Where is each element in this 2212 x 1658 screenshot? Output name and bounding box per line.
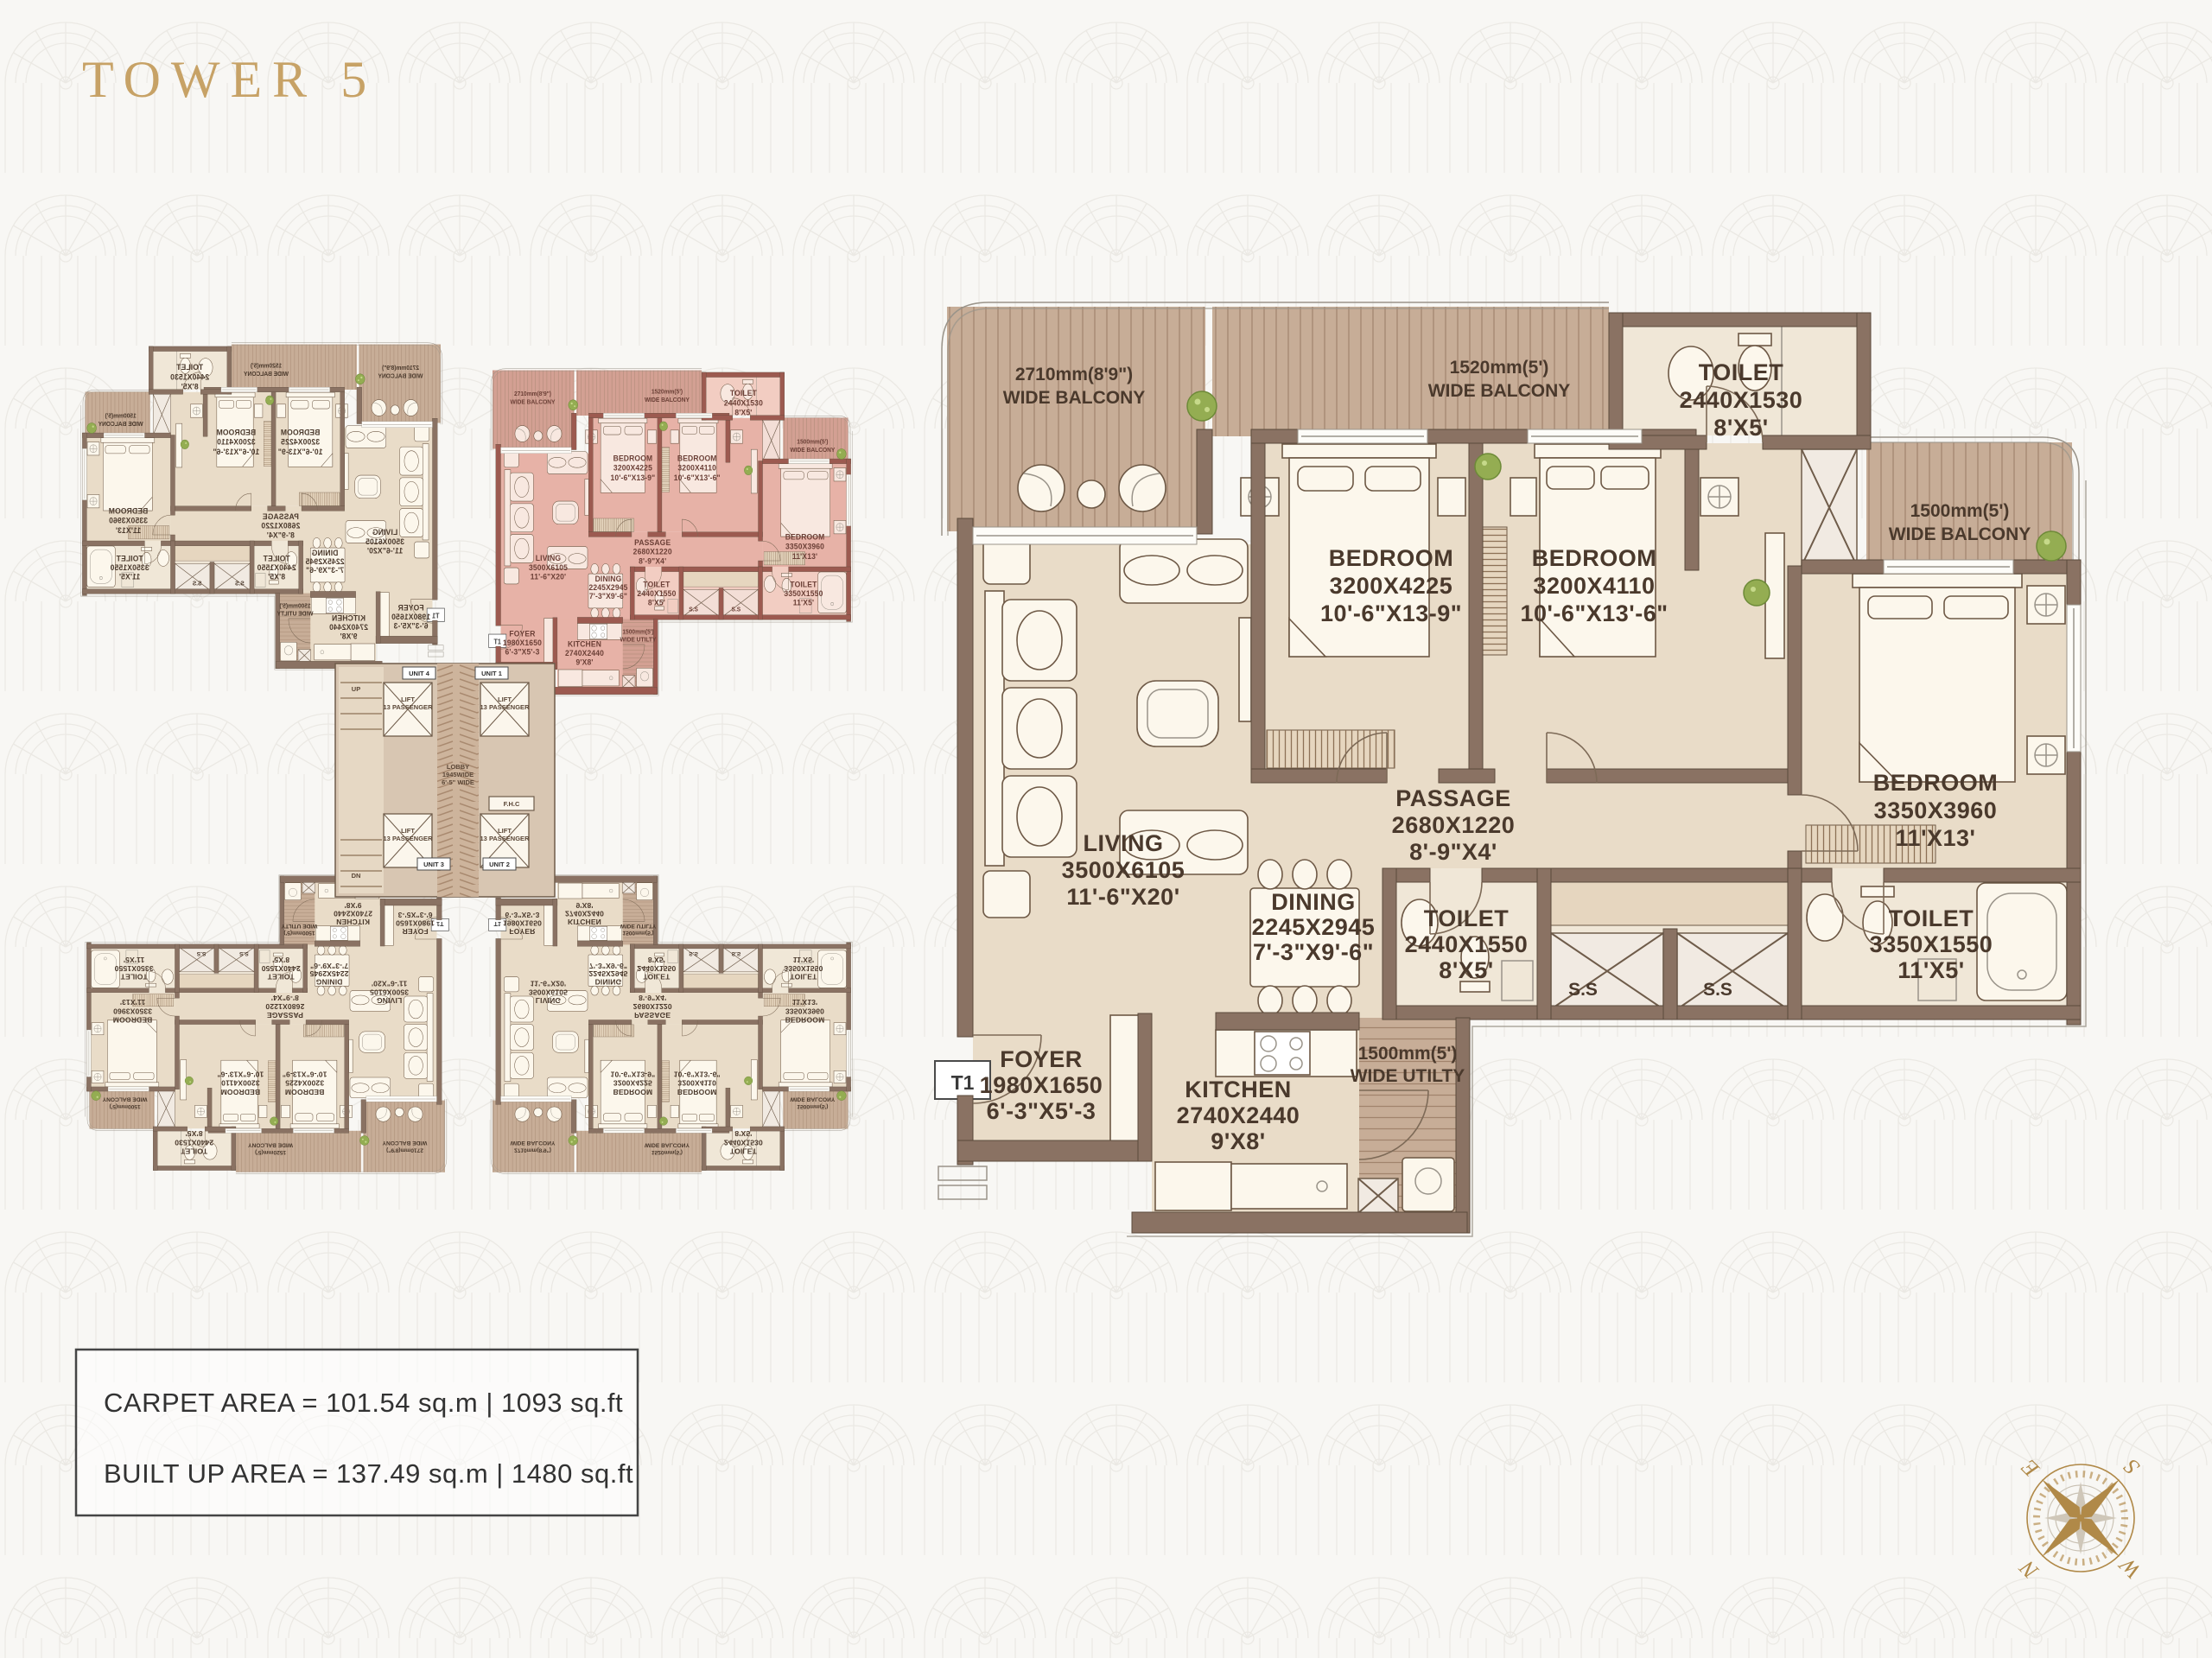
sofa-cushion [1017, 699, 1062, 758]
toilet-3-label-line-1: TOILET [1889, 905, 1974, 931]
tv-panel [1239, 618, 1251, 721]
floorplan-canvas: TOWER 5 [0, 0, 2212, 1658]
dining-label-line-3: 7'-3"X9'-6" [1253, 939, 1374, 965]
bedroom-1-label-line-3: 10'-6"X13-9" [1320, 600, 1462, 626]
balcony-chair [1119, 465, 1166, 511]
toilet-3-label-line-3: 11'X5' [1897, 957, 1964, 983]
pillow [1601, 467, 1649, 489]
dining-chair [1327, 986, 1351, 1015]
balcony-2-label-line-1: 1520mm(5') [1450, 358, 1549, 378]
headboard [1282, 444, 1436, 458]
toilet-1-label-line-2: 2440X1530 [1680, 387, 1803, 413]
dining-chair [1327, 860, 1351, 889]
sofa-back [985, 591, 1004, 866]
kitchen-label-line-1: KITCHEN [1185, 1077, 1292, 1102]
sofa-cushion [1017, 611, 1062, 670]
balcony-3-label-line-1: 1500mm(5') [1910, 501, 2010, 521]
dining-chair [1293, 860, 1317, 889]
plant-icon [1187, 391, 1217, 421]
service-shaft-1-label: S.S [1568, 980, 1598, 1000]
bedroom-3-label-line-3: 11'X13' [1896, 825, 1976, 851]
service-shaft-2-label: S.S [1703, 980, 1732, 1000]
shoe-cabinet [1110, 1015, 1142, 1147]
page-title: TOWER 5 [82, 51, 377, 108]
carpet-area-text: CARPET AREA = 101.54 sq.m | 1093 sq.ft [104, 1388, 623, 1418]
pillow [1944, 596, 2008, 619]
plant-icon [1744, 580, 1770, 606]
kp-lift-4-label-line-1: LIFT [498, 827, 512, 835]
pillow [1868, 596, 1932, 619]
toilet-1-label-line-1: TOILET [1699, 359, 1784, 385]
pillow [1547, 467, 1594, 489]
foyer-label-line-3: 6'-3"X5'-3 [987, 1098, 1096, 1124]
living-label-line-1: LIVING [1083, 830, 1163, 856]
wc-tank [1861, 886, 1894, 897]
built-up-area-text: BUILT UP AREA = 137.49 sq.m | 1480 sq.ft [104, 1458, 633, 1489]
kp-fhc-label: F.H.C [504, 800, 520, 808]
bedroom-2-label-line-1: BEDROOM [1532, 545, 1657, 571]
kp-lift-1-label-line-2: 13 PASSENGER [384, 703, 434, 711]
kp-lift-4-label-line-2: 13 PASSENGER [480, 835, 531, 842]
foyer-label-line-1: FOYER [1000, 1046, 1083, 1072]
passage-label-line-2: 2680X1220 [1392, 812, 1516, 838]
kp-unit-1-label: UNIT 1 [481, 670, 502, 677]
kp-up-label: UP [352, 685, 360, 693]
dining-chair [1258, 860, 1282, 889]
bedroom-1-label-line-1: BEDROOM [1329, 545, 1454, 571]
wc-tank [1738, 334, 1771, 346]
dining-chair [1293, 986, 1317, 1015]
balcony-1-label-line-2: WIDE BALCONY [1003, 388, 1146, 408]
kp-lobby-label-line-3: 6'-5" WIDE [442, 778, 474, 786]
utility-label-line-1: 1500mm(5') [1358, 1044, 1458, 1064]
area-info-box: CARPET AREA = 101.54 sq.m | 1093 sq.ft B… [76, 1350, 638, 1515]
kp-lift-3-label-line-1: LIFT [401, 827, 415, 835]
kp-lift-1-label-line-1: LIFT [401, 696, 415, 703]
kp-lobby-label-line-1: LOBBY [447, 763, 469, 771]
side-table [1438, 478, 1465, 516]
washing-machine [1402, 1158, 1454, 1211]
kp-lobby-label-line-2: 1945WIDE [442, 771, 474, 778]
plant-icon [1475, 454, 1501, 480]
headboard [1853, 574, 2022, 588]
plant-icon [2037, 531, 2066, 561]
foyer-label-line-2: 1980X1650 [980, 1072, 1103, 1098]
balcony-2-label-line-2: WIDE BALCONY [1428, 381, 1571, 401]
dining-chair [1258, 986, 1282, 1015]
kp-dn-label: DN [352, 872, 361, 880]
toilet-3-label-line-2: 3350X1550 [1870, 931, 1993, 957]
toilet-2-label-line-1: TOILET [1424, 905, 1510, 931]
kp-lift-3-label-line-2: 13 PASSENGER [384, 835, 434, 842]
kp-unit-3-label: UNIT 3 [423, 861, 444, 868]
living-label-line-3: 11'-6"X20' [1066, 884, 1179, 910]
bedroom-3-label-line-1: BEDROOM [1873, 770, 1999, 796]
living-label-line-2: 3500X6105 [1062, 857, 1185, 883]
balcony-3-label-line-2: WIDE BALCONY [1889, 524, 2031, 544]
side-table [1510, 478, 1536, 516]
floorplan-page: TOWER 5 [0, 0, 2212, 1658]
toilet-2-label-line-2: 2440X1550 [1405, 931, 1529, 957]
dining-label-line-2: 2245X2945 [1252, 914, 1376, 940]
corner-table [983, 871, 1030, 918]
coffee-table [1137, 681, 1218, 746]
passage-label-line-3: 8'-9"X4' [1409, 839, 1497, 865]
passage-label-line-1: PASSAGE [1395, 785, 1511, 811]
kp-unit-2-label: UNIT 2 [489, 861, 510, 868]
toilet-2-label-line-3: 8'X5' [1439, 957, 1493, 983]
pillow [1365, 467, 1421, 491]
basin [1807, 894, 1843, 941]
toilet-1-label-line-3: 8'X5' [1713, 415, 1768, 441]
kitchen-cabinet [1155, 1162, 1231, 1210]
utility-label-line-2: WIDE UTILTY [1351, 1066, 1465, 1086]
kitchen-label-line-3: 9'X8' [1211, 1128, 1265, 1154]
bedroom-1-label-line-2: 3200X4225 [1330, 573, 1453, 599]
bedroom-3-label-line-2: 3350X3960 [1874, 797, 1998, 823]
kp-lift-2-label-line-1: LIFT [498, 696, 512, 703]
balcony-chair [1018, 465, 1065, 511]
kitchen-counter [1231, 1164, 1347, 1209]
entry-tag-label: T1 [951, 1071, 975, 1094]
balcony-table [1077, 480, 1105, 508]
pillow [1298, 467, 1353, 491]
bedroom-2-label-line-3: 10'-6"X13'-6" [1520, 600, 1668, 626]
dining-label-line-1: DINING [1271, 889, 1356, 915]
kp-lift-2-label-line-2: 13 PASSENGER [480, 703, 531, 711]
kp-unit-4-label: UNIT 4 [409, 670, 430, 677]
bedroom-2-label-line-2: 3200X4110 [1533, 573, 1655, 599]
kitchen-label-line-2: 2740X2440 [1177, 1102, 1300, 1128]
balcony-1-label-line-1: 2710mm(8'9") [1015, 365, 1133, 384]
sofa-cushion [1017, 787, 1062, 846]
